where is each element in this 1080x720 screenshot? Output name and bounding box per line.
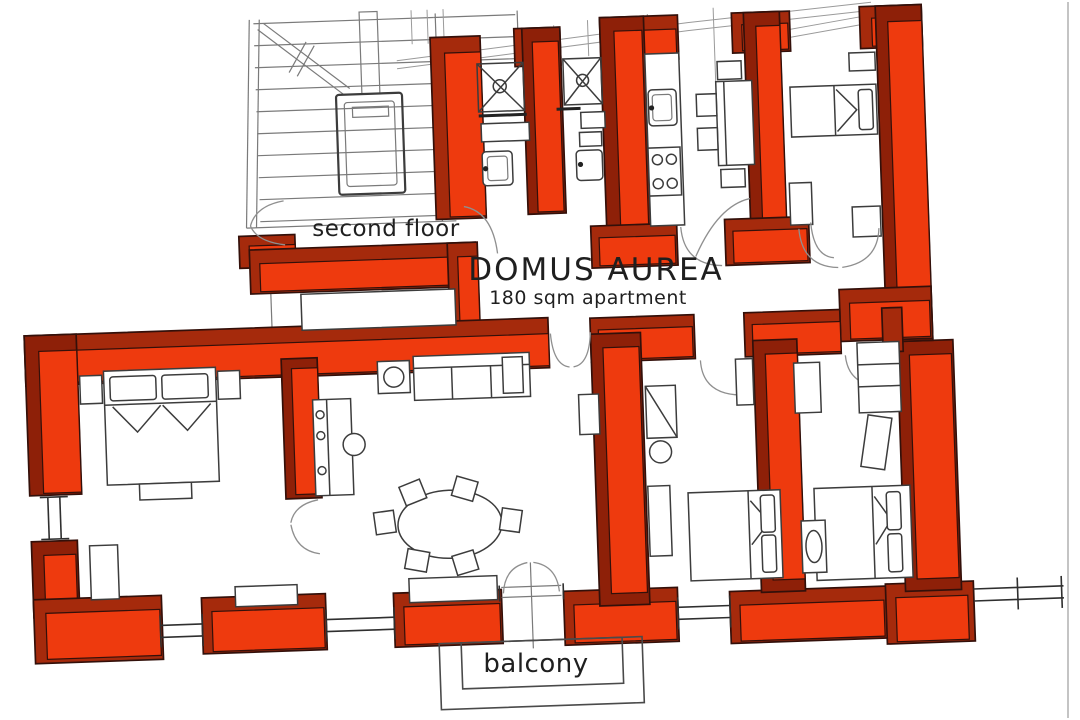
window-line [678,606,730,608]
floor-plan-drawing [0,0,1080,720]
chair [696,94,717,117]
window-tick [1017,577,1018,609]
window-tick [730,596,731,628]
window-line [60,497,61,539]
stool-icon [649,440,672,463]
sideboard [409,576,498,603]
window-line [160,624,202,625]
step-line [433,15,515,18]
step-line [255,61,435,67]
chair [451,476,478,501]
door-jamb [499,586,500,602]
stove-icon [648,147,682,196]
cradle [801,520,827,573]
window-line [678,617,730,619]
bedroom-right [793,341,913,581]
balcony-label: balcony [483,649,588,679]
radiator [849,52,876,71]
shower-threshold [479,114,527,116]
nightstand [217,370,240,399]
chair [721,169,746,188]
radiator [502,357,523,394]
desk [794,362,822,413]
nightstand [80,375,103,404]
wash-basin-icon [343,433,366,456]
shelf-box [861,415,892,470]
window-line [48,497,49,539]
wardrobe [857,341,901,412]
grid-line [427,10,428,44]
step-line [253,18,433,24]
door-center-line [530,562,533,648]
kitchen-counter [645,53,685,226]
banister-line [263,21,349,92]
bath-shelf [579,132,601,147]
pillow [762,535,777,572]
pillow [858,89,873,129]
plan-title: DOMUS AUREA [468,252,723,288]
step-line [259,171,439,177]
door-arc [290,500,319,523]
window-line [974,586,1064,589]
step-line [257,127,437,133]
window-tick [326,610,327,642]
stair-wall-line [239,20,256,228]
bath-shelf [481,122,530,142]
floor-label: second floor [312,216,459,242]
shower-threshold [557,108,581,109]
chair [399,479,427,506]
pillow [162,374,209,400]
door-arc [533,561,559,592]
column-tick [587,20,588,56]
door-arc [700,359,740,396]
bathroom-1 [477,62,531,186]
pillow [886,492,901,530]
bed-bench [139,482,192,500]
desk [852,206,881,237]
grid-line [411,10,412,44]
radiator [735,359,754,406]
floor-plan: second floor DOMUS AUREA 180 sqm apartme… [0,0,1080,720]
door-arc [572,332,591,367]
radiator [579,394,600,435]
step-line [258,149,438,155]
plan-subtitle: 180 sqm apartment [489,287,687,309]
step-line [256,83,436,89]
nightstand [789,182,812,225]
window-tick [41,539,69,540]
door-arc [291,524,320,555]
kitchen-table [716,80,755,165]
chair [373,510,396,535]
elevator [333,11,405,195]
pillow [110,375,157,401]
bench [648,486,672,557]
kitchen [645,50,757,226]
chair [452,550,479,576]
window-line [327,629,395,631]
direction-tick [288,42,307,73]
elevator-shaft [359,11,380,94]
window-tick [1061,576,1062,608]
window-tick [678,597,679,629]
bedroom-top-right [785,52,881,239]
window-tick [40,497,68,498]
bench [235,585,298,607]
side-table [377,361,410,394]
window-tick [160,615,161,647]
radiator [90,545,120,600]
chair [697,128,718,151]
shower-cross-line [477,62,525,112]
hall-closet [301,289,456,330]
window-line [326,617,394,619]
window-tick [394,607,395,639]
window-line [161,636,203,637]
stair-wall-line [249,20,266,228]
door-jamb [563,583,564,599]
bath-shelf [581,112,606,129]
door-arc [550,333,569,368]
door-arc [811,222,834,259]
pillow [760,495,775,532]
chair [717,61,742,80]
step-line [254,39,434,45]
chair [405,549,430,573]
pillow [888,533,903,571]
door-arc [502,563,528,594]
chair [499,508,522,533]
window-tick [202,614,203,646]
door-arc [250,201,285,226]
window-line [974,598,1064,601]
step-line [256,105,436,111]
